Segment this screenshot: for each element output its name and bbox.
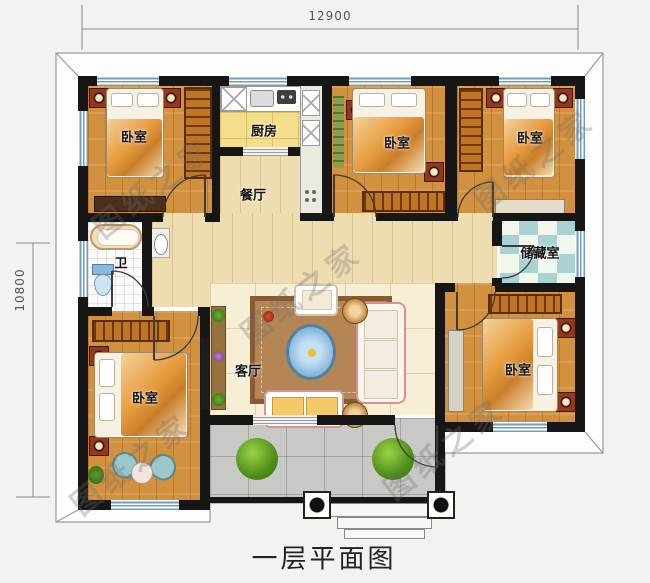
- wall-kitchen-bottom-b: [288, 147, 300, 156]
- window: [575, 98, 585, 160]
- wall-storage-bottom-a: [435, 283, 455, 292]
- room-label-living: 客厅: [235, 361, 261, 380]
- table-deco: [308, 349, 316, 357]
- window: [498, 76, 552, 86]
- stove-knob: [312, 198, 316, 202]
- plant-stand: [211, 306, 226, 410]
- wall-bathroom-right: [142, 222, 152, 316]
- coffee-table: [286, 324, 336, 380]
- side-lamp: [342, 298, 368, 324]
- living-porch-threshold: [253, 415, 317, 425]
- wardrobe: [459, 88, 483, 172]
- room-label-bedroom-bl: 卧室: [132, 388, 158, 407]
- sofa-cushion: [364, 340, 398, 369]
- wardrobe: [92, 320, 170, 342]
- wall-storage-left-upper: [492, 221, 502, 246]
- kitchen-sink: [250, 90, 274, 107]
- wall-bath-bottom-b: [148, 307, 154, 316]
- pillow: [111, 93, 133, 107]
- wardrobe: [362, 191, 445, 212]
- sofa-cushion: [364, 370, 398, 399]
- plant: [212, 309, 225, 322]
- window: [78, 110, 88, 167]
- bathtub: [90, 224, 142, 250]
- rug-flower-deco: [263, 311, 274, 322]
- pillow: [530, 93, 550, 107]
- bathtub-inner: [97, 229, 139, 246]
- room-label-bedroom-br: 卧室: [505, 360, 531, 379]
- plant: [88, 466, 104, 484]
- wall-living-bottom-b: [317, 415, 395, 425]
- nightstand: [161, 88, 181, 108]
- wall-kitchen-bottom-a: [212, 147, 243, 156]
- wall-hall-top-a: [300, 213, 334, 221]
- bush: [372, 438, 414, 480]
- chair-cushion: [302, 290, 332, 310]
- porch-column: [427, 491, 455, 519]
- wall-living-bottom-a: [210, 415, 253, 425]
- wash-basin: [150, 228, 170, 258]
- floor-plan-canvas: 卧室 厨房 卧室 卧室 餐厅 卫 储藏室 卧室 客厅 卧室 图纸之家 图纸之家 …: [0, 0, 650, 583]
- entry-step: [330, 503, 439, 517]
- dresser: [495, 199, 565, 214]
- pillow: [391, 93, 417, 107]
- porch-column: [303, 491, 331, 519]
- room-label-bathroom: 卫: [114, 253, 127, 272]
- wardrobe: [184, 87, 212, 179]
- hallway-floor-left: [152, 283, 210, 307]
- pillow: [137, 93, 159, 107]
- stove-knob: [305, 198, 309, 202]
- stove-knob: [312, 190, 316, 194]
- side-table: [131, 462, 153, 484]
- wardrobe: [488, 294, 562, 314]
- wall-hall-top-b: [376, 213, 458, 221]
- room-label-storage: 储藏室: [520, 243, 559, 262]
- kitchen-threshold: [243, 147, 288, 156]
- wall-living-bedroombr: [435, 283, 445, 503]
- vanity-desk: [94, 196, 166, 212]
- basin-bowl: [154, 234, 168, 255]
- bed: [352, 88, 426, 174]
- stove-knob: [305, 190, 309, 194]
- dimension-width: 12900: [308, 9, 351, 23]
- bush: [236, 438, 278, 480]
- dimension-height: 10800: [13, 268, 27, 311]
- pillow: [537, 327, 553, 357]
- mirror-dresser: [448, 330, 464, 412]
- tv-panel: [201, 338, 209, 410]
- window: [575, 230, 585, 278]
- hallway-floor: [152, 213, 497, 283]
- wall-hall-top-c: [493, 213, 585, 221]
- plant: [212, 393, 225, 406]
- pillow: [507, 93, 527, 107]
- room-label-kitchen: 厨房: [251, 121, 277, 140]
- window: [96, 76, 160, 86]
- plan-title: 一层平面图: [251, 539, 396, 576]
- wall-storage-bottom-b: [495, 283, 585, 292]
- wall-kitchen-bedroomtm: [322, 86, 332, 213]
- pillow: [359, 93, 385, 107]
- window: [348, 76, 412, 86]
- nightstand: [89, 436, 109, 456]
- room-label-bedroom-tm: 卧室: [384, 133, 410, 152]
- pillow: [99, 359, 115, 387]
- nightstand: [424, 162, 444, 182]
- flower: [213, 351, 224, 362]
- nightstand: [556, 318, 576, 338]
- room-label-dining: 餐厅: [240, 185, 266, 204]
- pillow: [99, 393, 115, 421]
- pillow: [537, 365, 553, 395]
- room-label-bedroom-tr: 卧室: [517, 128, 543, 147]
- kitchen-cabinet: [302, 90, 320, 116]
- window: [228, 76, 288, 86]
- nightstand: [553, 88, 573, 108]
- nightstand: [556, 392, 576, 412]
- wall-bedroomtl-bottom-b: [205, 213, 220, 222]
- kitchen-stove: [277, 90, 296, 104]
- plant-shelf: [333, 96, 344, 168]
- entry-step: [337, 517, 432, 529]
- room-label-bedroom-tl: 卧室: [121, 127, 147, 146]
- window: [110, 500, 180, 510]
- wall-bedroomtm-bedroomtr: [445, 86, 457, 213]
- kitchen-cabinet: [302, 120, 320, 146]
- kitchen-cabinet: [221, 87, 247, 111]
- window: [78, 240, 88, 298]
- sofa-cushion: [364, 310, 398, 339]
- wall-bath-bottom-c: [198, 307, 210, 316]
- armchair: [294, 284, 338, 316]
- wall-bath-bottom-a: [78, 307, 112, 316]
- wall-bedroomtl-bottom-a: [78, 213, 163, 222]
- entry-step: [344, 529, 425, 539]
- window: [492, 422, 548, 432]
